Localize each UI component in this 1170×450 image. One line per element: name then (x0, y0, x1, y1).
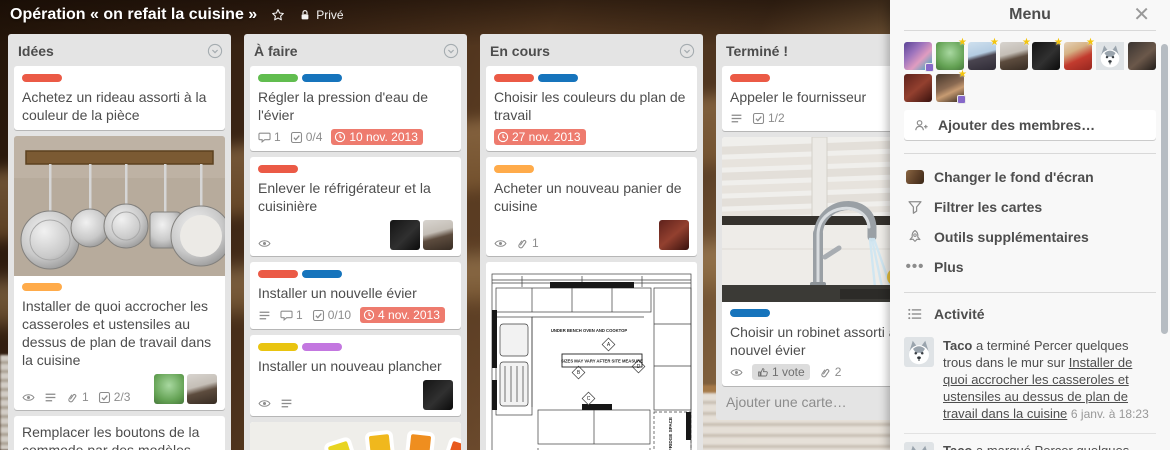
floorplan-sizes-label: SIZES MAY VARY AFTER SITE MEASURE (561, 359, 643, 364)
activity-user[interactable]: Taco (943, 338, 972, 353)
card-title: Remplacer les boutons de la commode par … (22, 423, 217, 450)
brown-portrait-avatar[interactable]: ★ (936, 74, 964, 102)
eye-icon (258, 237, 271, 250)
board-header: Opération « on refait la cuisine » Privé (0, 0, 890, 30)
card[interactable]: Installer un nouvelle évier 1 0/10 4 nov… (250, 262, 461, 329)
checklist-badge: 0/4 (290, 130, 323, 144)
checklist-icon (98, 391, 111, 404)
member-sub-badge (925, 63, 934, 72)
description-badge (730, 112, 743, 125)
card-label-green (258, 74, 298, 82)
activity-timestamp: 6 janv. à 18:23 (1071, 407, 1149, 421)
husky-icon (1096, 42, 1124, 70)
husky-icon (904, 337, 934, 367)
card[interactable]: Choisir les couleurs du plan de travail … (486, 66, 697, 151)
star-badge-icon: ★ (1054, 38, 1063, 48)
paperclip-icon (516, 237, 529, 250)
menu-title: Menu (1009, 6, 1051, 24)
description-badge (44, 391, 57, 404)
card[interactable]: A B C D UNDER BENCH OVEN AND COOKTOP SIZ… (486, 262, 697, 450)
attachments-badge: 1 (66, 390, 89, 404)
card-label-red (258, 270, 298, 278)
card-label-orange (494, 165, 534, 173)
privacy-label: Privé (316, 8, 343, 22)
taco-husky-avatar[interactable] (904, 442, 934, 450)
eye-icon (730, 366, 743, 379)
card-label-red (730, 74, 770, 82)
comments-badge: 1 (280, 308, 303, 322)
comment-icon (258, 131, 271, 144)
checklist-badge: 1/2 (752, 111, 785, 125)
card-label-purple (302, 343, 342, 351)
card[interactable]: Régler la pression d'eau de l'évier 1 0/… (250, 66, 461, 151)
ellipsis-icon: ••• (906, 263, 925, 271)
card-label-blue (538, 74, 578, 82)
member-sub-badge (957, 95, 966, 104)
watching-badge (494, 237, 507, 250)
star-badge-icon: ★ (958, 70, 967, 80)
card-label-yellow (258, 343, 298, 351)
floorplan-oven-label: UNDER BENCH OVEN AND COOKTOP (551, 328, 628, 333)
votes-badge: 1 vote (752, 364, 810, 380)
clock-icon (497, 131, 509, 143)
card[interactable]: Installer de quoi accrocher les casserol… (14, 136, 225, 410)
card-title: Installer de quoi accrocher les casserol… (22, 297, 217, 369)
clock-icon (334, 131, 346, 143)
checklist-badge: 2/3 (98, 390, 131, 404)
husky-dog-avatar[interactable] (1096, 42, 1124, 70)
checklist-icon (312, 309, 325, 322)
black-avatar[interactable] (423, 380, 453, 410)
activity-action: a marqué Percer quelques trous dans le m… (943, 443, 1145, 450)
card[interactable]: Achetez un rideau assorti à la couleur d… (14, 66, 225, 130)
activity-item: Taco a marqué Percer quelques trous dans… (904, 434, 1156, 450)
paperclip-icon (66, 391, 79, 404)
black-avatar[interactable]: ★ (1032, 42, 1060, 70)
paint-swatch-fan-photo (250, 422, 461, 450)
star-badge-icon: ★ (990, 38, 999, 48)
kitchen-floor-plan-drawing: A B C D UNDER BENCH OVEN AND COOKTOP SIZ… (486, 262, 697, 450)
card[interactable]: Remplacer les boutons de la commode par … (14, 416, 225, 450)
watching-badge (730, 366, 743, 379)
dark-red-avatar[interactable] (659, 220, 689, 250)
card-label-orange (22, 283, 62, 291)
rocket-icon (907, 229, 923, 245)
activity-user[interactable]: Taco (943, 443, 972, 450)
menu-item-change-background[interactable]: Changer le fond d'écran (904, 164, 1156, 190)
eye-icon (258, 397, 271, 410)
red-dress-avatar[interactable]: ★ (1064, 42, 1092, 70)
list-idees: Idées Achetez un rideau assorti à la cou… (8, 34, 231, 450)
list-title[interactable]: Terminé ! (726, 43, 915, 59)
card-title: Installer un nouvelle évier (258, 284, 453, 302)
taco-husky-avatar[interactable] (904, 337, 934, 367)
husky-icon (904, 442, 934, 450)
list-en-cours: En cours Choisir les couleurs du plan de… (480, 34, 703, 450)
star-badge-icon: ★ (958, 38, 967, 48)
checklist-icon (290, 131, 303, 144)
description-badge (258, 309, 271, 322)
list-title[interactable]: Idées (18, 43, 207, 59)
card[interactable]: Enlever le réfrigérateur et la cuisinièr… (250, 157, 461, 256)
attachments-badge: 1 (516, 236, 539, 250)
woman-portrait-avatar[interactable] (423, 220, 453, 250)
card-title: Enlever le réfrigérateur et la cuisinièr… (258, 179, 453, 215)
blue-portrait-avatar[interactable]: ★ (968, 42, 996, 70)
star-badge-icon: ★ (1022, 38, 1031, 48)
comment-icon (280, 309, 293, 322)
checklist-badge: 0/10 (312, 308, 351, 322)
activity-icon (907, 306, 923, 322)
floorplan-fridge-label: FRIDGE SPACE (668, 417, 673, 450)
card-label-blue (302, 74, 342, 82)
activity-item: Taco a terminé Percer quelques trous dan… (904, 329, 1156, 434)
list-menu-chevron-icon[interactable] (207, 43, 223, 59)
board-members-grid: ★ ★ ★ ★ ★ ★ (904, 31, 1156, 110)
watching-badge (22, 391, 35, 404)
thumbs-up-icon (757, 366, 769, 378)
list-title[interactable]: En cours (490, 43, 679, 59)
card-label-blue (730, 309, 770, 317)
card-label-blue (302, 270, 342, 278)
watching-badge (258, 237, 271, 250)
trello-board-screen: Opération « on refait la cuisine » Privé… (0, 0, 1170, 450)
card-title: Régler la pression d'eau de l'évier (258, 88, 453, 124)
list-menu-chevron-icon[interactable] (443, 43, 459, 59)
checklist-icon (752, 112, 765, 125)
close-menu-icon[interactable]: ✕ (1129, 2, 1154, 28)
due-date-badge: 10 nov. 2013 (331, 129, 423, 145)
board-menu-panel: Menu ✕ ★ ★ ★ ★ ★ ★ Ajouter des membres… … (890, 0, 1170, 450)
card-label-red (258, 165, 298, 173)
card-label-red (22, 74, 62, 82)
card-title: Acheter un nouveau panier de cuisine (494, 179, 689, 215)
star-badge-icon: ★ (1086, 38, 1095, 48)
activity-header: Activité (904, 293, 1156, 329)
eye-icon (494, 237, 507, 250)
attachments-badge: 2 (819, 365, 842, 379)
star-icon (271, 8, 285, 22)
card[interactable]: Installer un nouveau plancher (250, 335, 461, 416)
menu-items: Changer le fond d'écran Filtrer les cart… (904, 154, 1156, 292)
dark-red-avatar[interactable] (904, 74, 932, 102)
padlock-icon (299, 9, 311, 21)
menu-scrollbar[interactable] (1161, 44, 1168, 334)
menu-item-power-ups[interactable]: Outils supplémentaires (904, 224, 1156, 250)
due-date-badge: 4 nov. 2013 (360, 307, 445, 323)
black-avatar[interactable] (390, 220, 420, 250)
description-icon (258, 309, 271, 322)
hanging-pans-photo (14, 136, 225, 276)
paperclip-icon (819, 366, 832, 379)
green-monster-avatar[interactable] (154, 374, 184, 404)
clock-icon (363, 309, 375, 321)
person-add-icon (914, 118, 929, 133)
board-title[interactable]: Opération « on refait la cuisine » (10, 6, 257, 24)
card-title: Achetez un rideau assorti à la couleur d… (22, 88, 217, 124)
card-label-red (494, 74, 534, 82)
menu-item-filter-cards[interactable]: Filtrer les cartes (904, 194, 1156, 220)
filter-icon (907, 199, 923, 215)
description-icon (44, 391, 57, 404)
card[interactable] (250, 422, 461, 450)
watching-badge (258, 397, 271, 410)
description-icon (280, 397, 293, 410)
card-title: Choisir les couleurs du plan de travail (494, 88, 689, 124)
floorplan-marker-c: C (587, 396, 591, 402)
description-badge (280, 397, 293, 410)
purple-hand-avatar[interactable] (904, 42, 932, 70)
add-members-button[interactable]: Ajouter des membres… (904, 110, 1156, 140)
green-monster-avatar[interactable]: ★ (936, 42, 964, 70)
list-a-faire: À faire Régler la pression d'eau de l'év… (244, 34, 467, 450)
comments-badge: 1 (258, 130, 281, 144)
list-title[interactable]: À faire (254, 43, 443, 59)
menu-item-more[interactable]: ••• Plus (904, 254, 1156, 280)
eye-icon (22, 391, 35, 404)
background-thumbnail-icon (906, 170, 924, 184)
list-menu-chevron-icon[interactable] (679, 43, 695, 59)
grey-portrait-avatar[interactable]: ★ (1000, 42, 1028, 70)
star-board-button[interactable] (271, 8, 285, 22)
card[interactable]: Acheter un nouveau panier de cuisine 1 (486, 157, 697, 256)
card-title: Installer un nouveau plancher (258, 357, 453, 375)
dark-portrait-avatar[interactable] (1128, 42, 1156, 70)
board-privacy-button[interactable]: Privé (299, 8, 343, 22)
woman-portrait-avatar[interactable] (187, 374, 217, 404)
due-date-badge: 27 nov. 2013 (494, 129, 586, 145)
description-icon (730, 112, 743, 125)
